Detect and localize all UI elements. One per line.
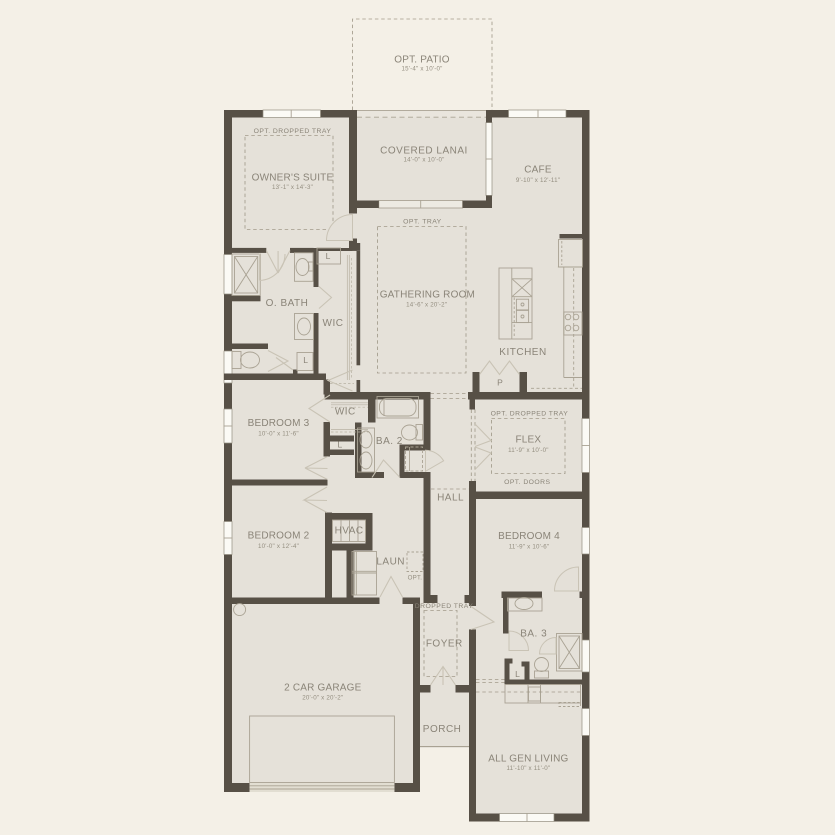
svg-text:11'-10" x 11'-0": 11'-10" x 11'-0" (507, 765, 551, 772)
svg-text:BA. 3: BA. 3 (520, 629, 547, 640)
svg-text:14'-6" x 20'-2": 14'-6" x 20'-2" (406, 302, 447, 309)
svg-text:BEDROOM 2: BEDROOM 2 (248, 531, 310, 542)
svg-text:OPT. DROPPED TRAY: OPT. DROPPED TRAY (254, 128, 332, 135)
svg-text:OPT. DOORS: OPT. DOORS (504, 479, 550, 486)
svg-text:GATHERING ROOM: GATHERING ROOM (380, 290, 475, 301)
svg-text:PORCH: PORCH (423, 724, 462, 735)
svg-text:2 CAR GARAGE: 2 CAR GARAGE (284, 682, 362, 693)
svg-text:10'-0" x 11'-6": 10'-0" x 11'-6" (258, 431, 299, 438)
svg-text:9'-10" x 12'-11": 9'-10" x 12'-11" (516, 177, 560, 184)
svg-text:11'-9" x 10'-6": 11'-9" x 10'-6" (509, 544, 550, 551)
svg-text:FLEX: FLEX (515, 435, 541, 446)
svg-text:13'-1" x 14'-3": 13'-1" x 14'-3" (272, 184, 313, 191)
svg-text:BA. 2: BA. 2 (376, 436, 403, 447)
svg-text:15'-4" x 10'-0": 15'-4" x 10'-0" (401, 66, 442, 73)
svg-text:FOYER: FOYER (426, 639, 463, 650)
svg-text:KITCHEN: KITCHEN (499, 347, 546, 358)
svg-text:HALL: HALL (437, 493, 464, 504)
svg-text:OPT. DROPPED TRAY: OPT. DROPPED TRAY (491, 411, 569, 418)
svg-text:P: P (497, 378, 503, 388)
svg-text:OPT.: OPT. (408, 575, 423, 582)
svg-text:DROPPED TRAY: DROPPED TRAY (415, 603, 473, 610)
svg-text:14'-0" x 10'-0": 14'-0" x 10'-0" (403, 157, 444, 164)
svg-text:COVERED LANAI: COVERED LANAI (380, 146, 468, 157)
svg-text:L: L (326, 251, 331, 261)
svg-text:20'-0" x 20'-2": 20'-0" x 20'-2" (302, 695, 343, 702)
svg-text:BEDROOM 3: BEDROOM 3 (248, 418, 310, 429)
svg-text:WIC: WIC (323, 318, 344, 329)
svg-text:OPT. PATIO: OPT. PATIO (394, 55, 450, 66)
svg-text:O. BATH: O. BATH (266, 298, 309, 309)
svg-text:11'-9" x 10'-0": 11'-9" x 10'-0" (508, 447, 549, 454)
svg-text:L: L (515, 669, 520, 679)
svg-text:LAUN: LAUN (376, 557, 405, 568)
svg-text:BEDROOM 4: BEDROOM 4 (498, 531, 560, 542)
svg-text:ALL GEN LIVING: ALL GEN LIVING (488, 754, 568, 765)
svg-text:OWNER'S SUITE: OWNER'S SUITE (252, 172, 334, 183)
svg-text:L: L (303, 355, 308, 365)
svg-text:HVAC: HVAC (335, 526, 364, 537)
svg-text:CAFE: CAFE (524, 165, 552, 176)
svg-text:10'-0" x 12'-4": 10'-0" x 12'-4" (258, 543, 299, 550)
svg-text:L: L (338, 440, 343, 450)
svg-text:OPT. TRAY: OPT. TRAY (403, 219, 442, 226)
svg-text:WIC: WIC (335, 407, 356, 418)
